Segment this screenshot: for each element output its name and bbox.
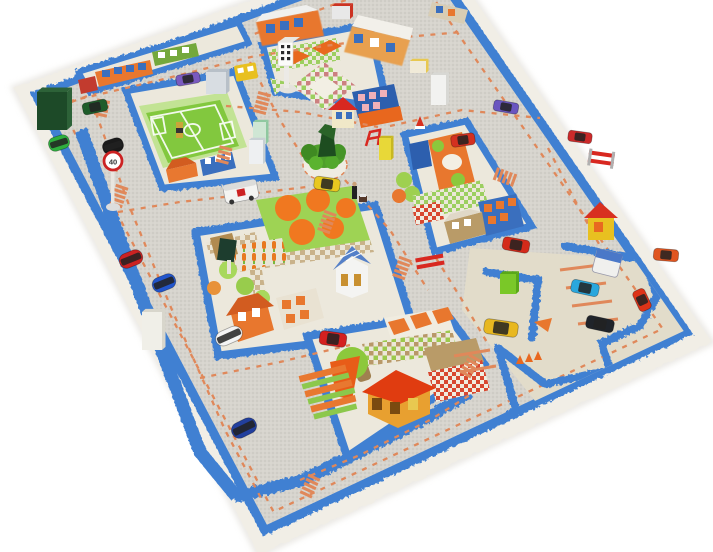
svg-text:40: 40 (109, 158, 117, 167)
